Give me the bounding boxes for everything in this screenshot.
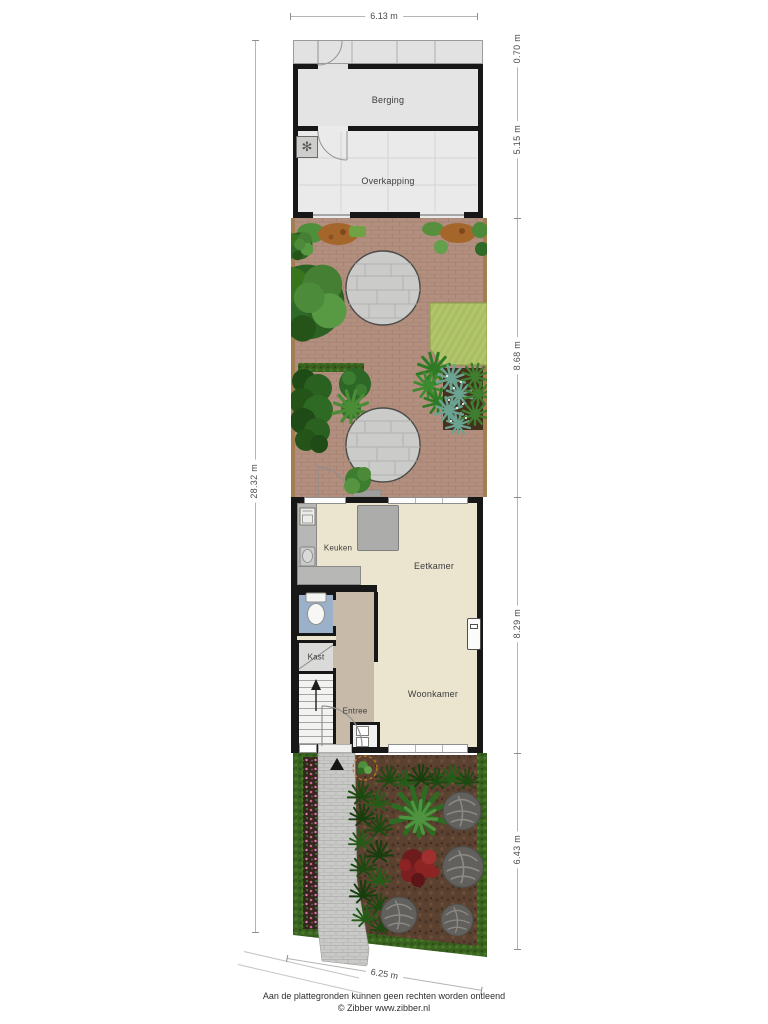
dim-left-label: 28.32 m xyxy=(248,460,260,503)
front-garden xyxy=(291,753,487,969)
room-label-entree: Entree xyxy=(343,707,368,716)
dim-bottom-label: 6.25 m xyxy=(365,965,404,983)
outbuilding-details xyxy=(293,40,483,218)
footer-copyright: © Zibber www.zibber.nl xyxy=(0,1003,768,1013)
dim-right xyxy=(510,40,524,950)
dim-top-label: 6.13 m xyxy=(365,10,403,22)
toilet-icon xyxy=(306,593,326,625)
garden-border-left xyxy=(291,218,295,497)
dim-top: 6.13 m xyxy=(290,8,478,24)
floorplan-page: { "dimensions": { "top": "6.13 m", "bott… xyxy=(0,0,768,1024)
house-details xyxy=(291,497,483,753)
stairs-up-arrow-icon xyxy=(311,679,321,711)
strip-dividers xyxy=(318,41,435,63)
dim-right-label-4: 8.29 m xyxy=(511,605,523,642)
dim-right-label-2: 5.15 m xyxy=(511,121,523,158)
dim-right-label-1: 0.70 m xyxy=(511,30,523,67)
room-label-keuken: Keuken xyxy=(324,544,352,553)
footer-disclaimer: Aan de plattegronden kunnen geen rechten… xyxy=(0,991,768,1001)
room-label-overkapping: Overkapping xyxy=(361,176,414,186)
dark-shrub-mass xyxy=(291,369,333,453)
door-arc xyxy=(318,131,347,160)
sink-icon xyxy=(300,547,315,566)
patio-circle-1 xyxy=(346,251,420,325)
room-label-kast: Kast xyxy=(308,653,325,662)
dim-right-label-3: 8.68 m xyxy=(511,337,523,374)
door-arc xyxy=(318,41,342,65)
dim-right-label-5: 6.43 m xyxy=(511,831,523,868)
room-label-berging: Berging xyxy=(372,95,404,105)
pink-flower-border xyxy=(303,757,318,929)
overkapping-floor-grid xyxy=(299,132,477,211)
oven-icon xyxy=(300,508,315,525)
room-label-eetkamer: Eetkamer xyxy=(414,561,454,571)
heat-pump-icon: ✻ xyxy=(296,136,318,158)
room-label-woonkamer: Woonkamer xyxy=(408,689,458,699)
back-garden xyxy=(291,218,487,497)
